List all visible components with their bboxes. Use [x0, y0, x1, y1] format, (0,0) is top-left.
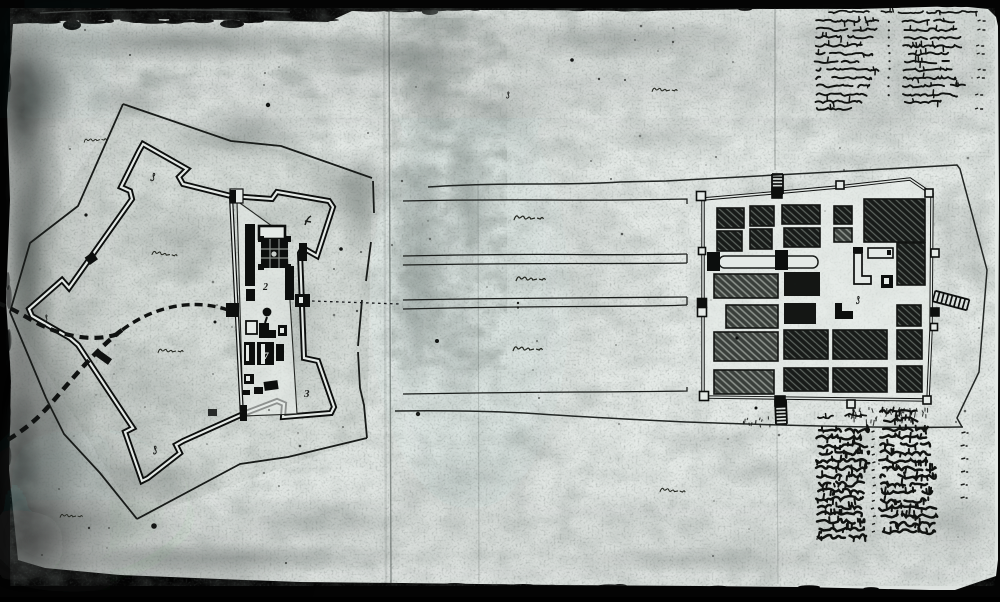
svg-text:2: 2: [262, 282, 268, 293]
svg-text:7: 7: [264, 351, 269, 361]
svg-text:3: 3: [303, 388, 310, 400]
